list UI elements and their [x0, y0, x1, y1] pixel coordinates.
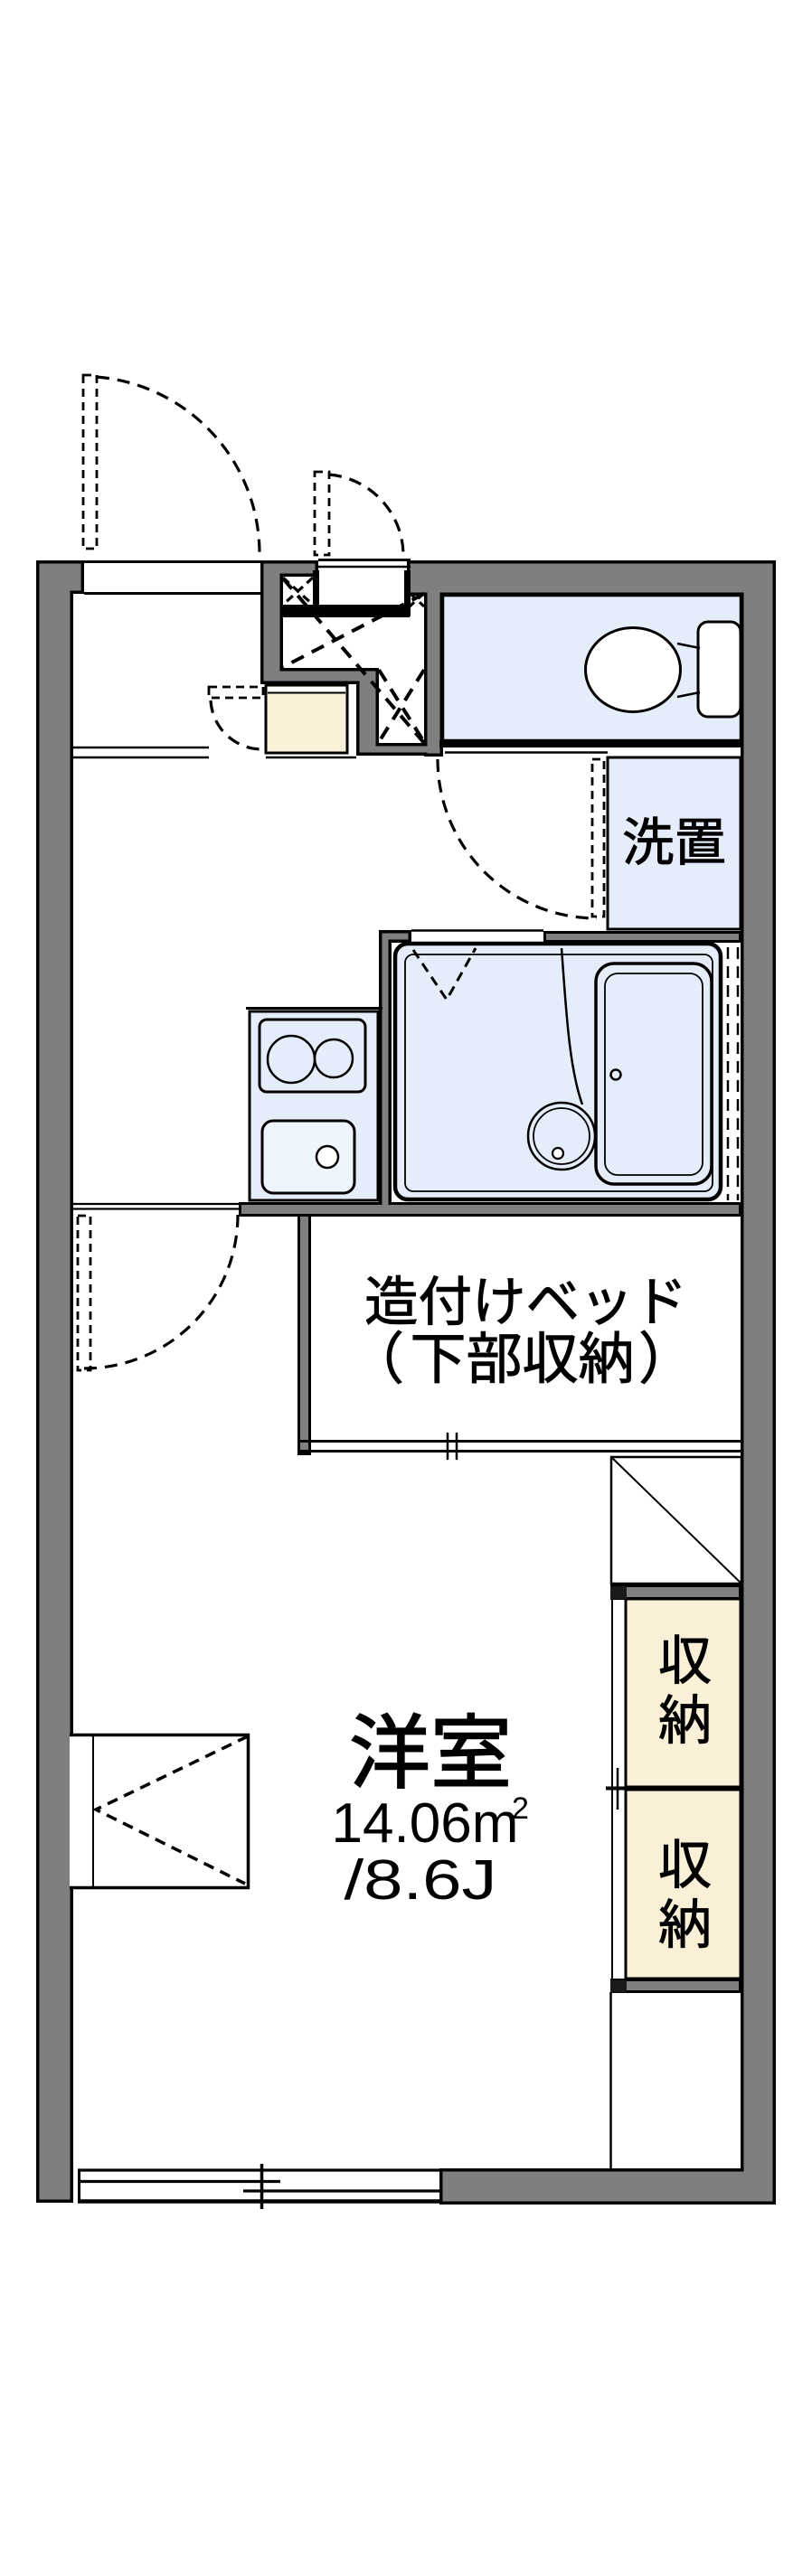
- svg-text:2: 2: [512, 1791, 529, 1826]
- svg-text:14.06m: 14.06m: [332, 1792, 519, 1855]
- svg-text:/8.6J: /8.6J: [345, 1849, 497, 1912]
